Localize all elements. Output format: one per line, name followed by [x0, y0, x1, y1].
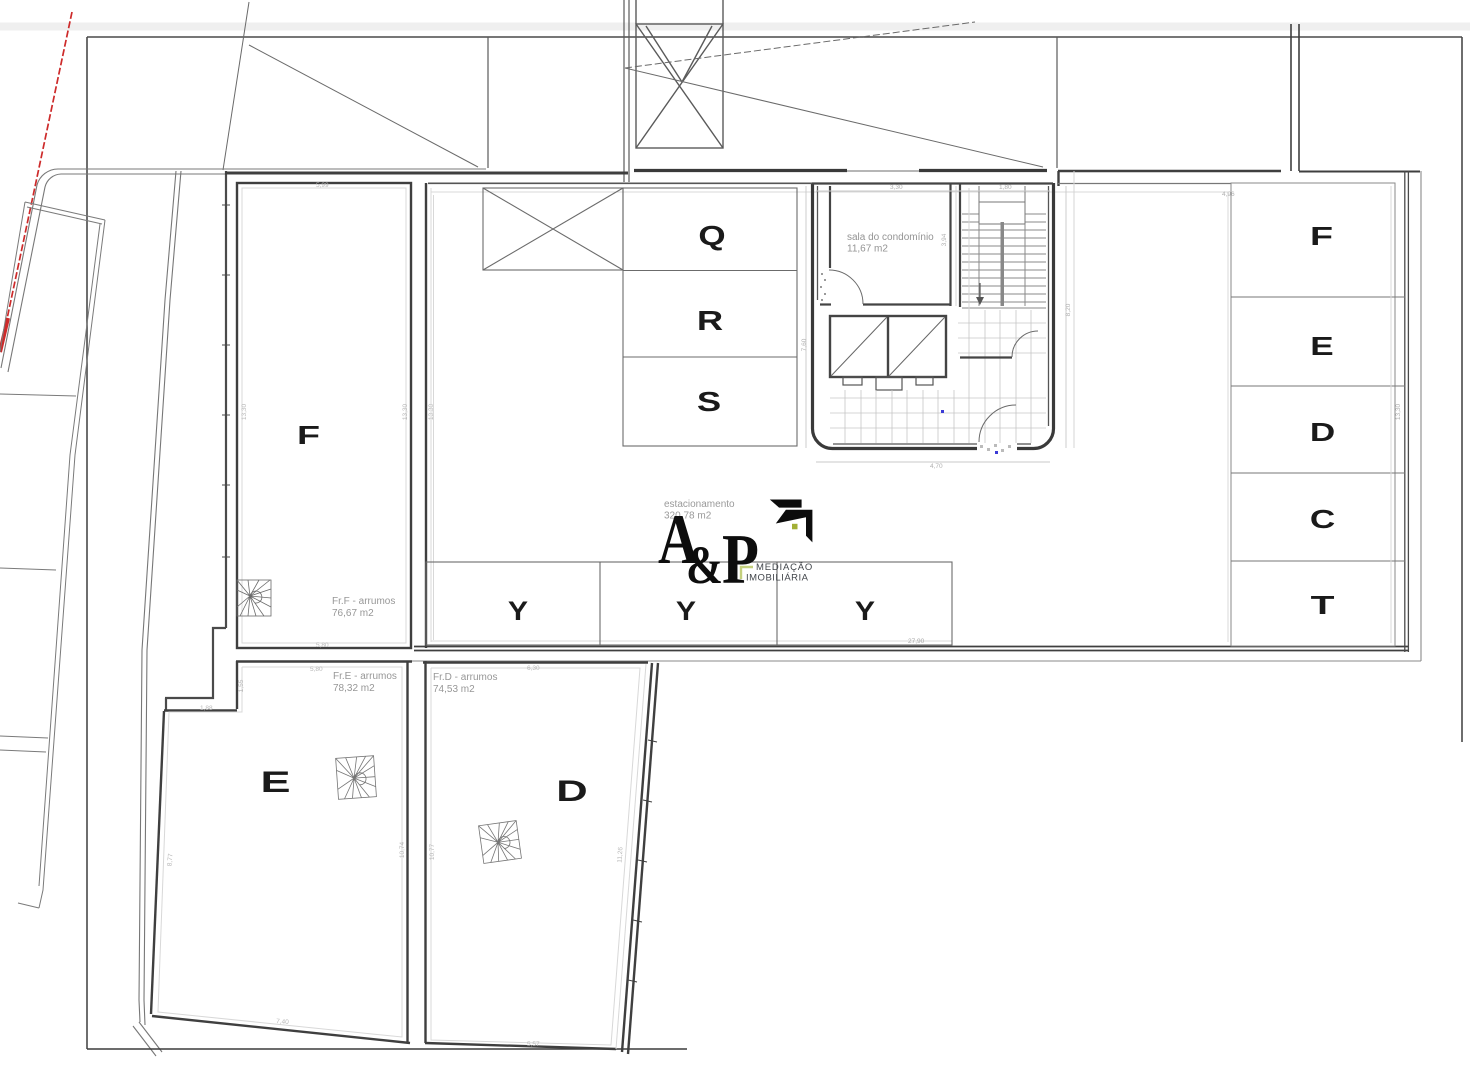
svg-text:Fr.D - arrumos: Fr.D - arrumos	[433, 672, 497, 683]
svg-text:1,88: 1,88	[200, 705, 213, 712]
svg-text:1,55: 1,55	[238, 679, 245, 692]
svg-text:P: P	[722, 521, 759, 599]
svg-text:5,57: 5,57	[527, 1041, 540, 1048]
svg-text:10,74: 10,74	[399, 841, 406, 858]
svg-text:D: D	[556, 774, 587, 808]
svg-text:7,40: 7,40	[276, 1018, 290, 1026]
svg-text:MEDIAÇÃO: MEDIAÇÃO	[756, 562, 813, 573]
svg-text:5,80: 5,80	[310, 666, 323, 673]
svg-text:10,77: 10,77	[429, 843, 436, 860]
svg-text:74,53 m2: 74,53 m2	[433, 684, 475, 695]
svg-text:6,30: 6,30	[527, 665, 540, 672]
svg-text:E: E	[260, 765, 290, 799]
svg-text:11,26: 11,26	[616, 846, 624, 863]
svg-text:&: &	[686, 535, 723, 595]
svg-text:Fr.E - arrumos: Fr.E - arrumos	[333, 671, 397, 682]
svg-text:78,32 m2: 78,32 m2	[333, 683, 375, 694]
svg-text:8,77: 8,77	[167, 853, 175, 866]
svg-text:IMOBILIÁRIA: IMOBILIÁRIA	[746, 573, 809, 584]
